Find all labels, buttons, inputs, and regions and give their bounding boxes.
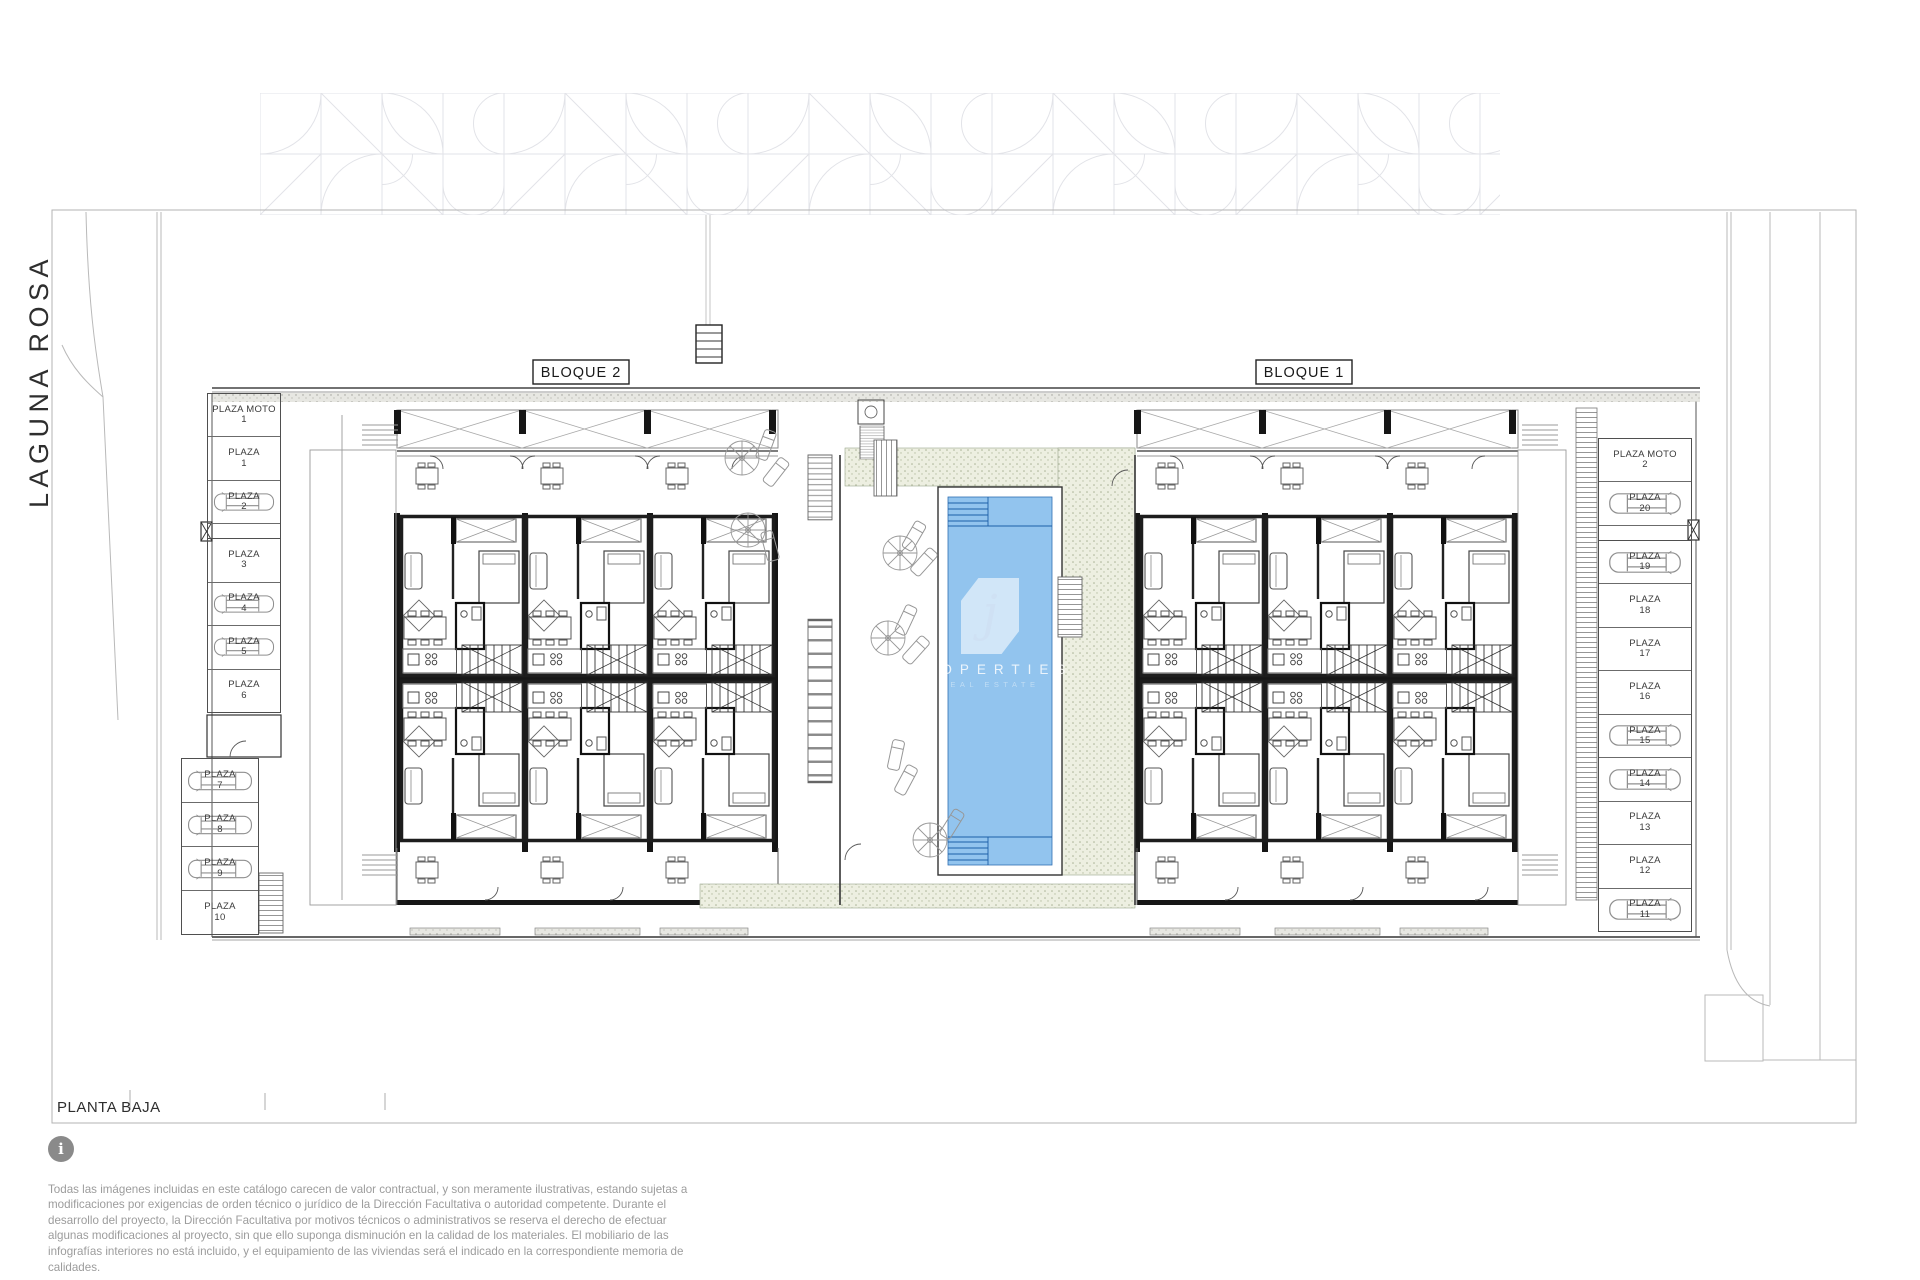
stall-label: PLAZA	[204, 770, 236, 780]
legal-disclaimer: Todas las imágenes incluidas en este cat…	[48, 1182, 708, 1276]
frame-ticks	[130, 1090, 385, 1110]
stall-label: PLAZA	[1629, 595, 1661, 605]
street-right	[1705, 212, 1856, 1061]
stall-label: PLAZA	[204, 858, 236, 868]
stall-number: 9	[217, 869, 223, 879]
stall-number: 19	[1639, 562, 1650, 572]
parking-stall: PLAZA 3	[208, 538, 280, 582]
parking-stall: PLAZA 15	[1599, 715, 1691, 758]
parking-stall: PLAZA 7	[182, 759, 258, 803]
parking-stall: PLAZA 10	[182, 891, 258, 934]
stall-number: 7	[217, 781, 223, 791]
street-left	[62, 212, 161, 940]
parking-stall: PLAZA MOTO 2	[1599, 439, 1691, 482]
floorplan-page: BLOQUE 2 BLOQUE 1 LAGUNA ROSA PLANTA BAJ…	[0, 0, 1920, 1280]
stall-number: 13	[1639, 823, 1650, 833]
stall-number: 11	[1640, 910, 1650, 920]
stall-number: 5	[241, 647, 247, 657]
info-icon: i	[48, 1136, 74, 1162]
parking-stall: PLAZA 8	[182, 803, 258, 847]
stall-number: 3	[241, 560, 247, 570]
stall-label: PLAZA	[204, 902, 236, 912]
right-walkway-ramp	[1576, 408, 1597, 900]
stall-number: 18	[1639, 606, 1650, 616]
parking-column-left-lower: PLAZA 7 PLAZA 8 PLAZA 9	[181, 758, 259, 935]
stall-number: 1	[241, 459, 247, 469]
parking-stall: PLAZA 9	[182, 847, 258, 891]
stall-number: 10	[214, 913, 225, 923]
stall-number: 20	[1639, 504, 1650, 514]
parking-stall: PLAZA 14	[1599, 758, 1691, 801]
stall-number: 1	[241, 415, 247, 425]
parking-stall: PLAZA 12	[1599, 845, 1691, 888]
floor-title: PLANTA BAJA	[57, 1099, 161, 1116]
decorative-tile-band	[260, 93, 1500, 215]
stall-label: PLAZA	[204, 814, 236, 824]
street-name-label: LAGUNA ROSA	[24, 254, 54, 508]
bloque-2-building	[394, 410, 778, 935]
stall-number: 8	[217, 825, 223, 835]
parking-stall: PLAZA 1	[208, 437, 280, 480]
parking-stall: PLAZA 5	[208, 626, 280, 669]
stall-number: 17	[1639, 649, 1650, 659]
stall-number: 6	[241, 691, 247, 701]
parking-stall: PLAZA 2	[208, 481, 280, 524]
block2-left-terrace	[310, 415, 398, 905]
parking-stall: PLAZA 19	[1599, 540, 1691, 584]
block2-label: BLOQUE 2	[533, 360, 629, 384]
entry-gate	[696, 215, 722, 363]
parking-column-right: PLAZA MOTO 2 PLAZA 20 PLAZA 19	[1598, 438, 1692, 932]
svg-text:BLOQUE 1: BLOQUE 1	[1264, 365, 1345, 381]
parking-stall: PLAZA 17	[1599, 628, 1691, 671]
parking-stall: PLAZA 13	[1599, 802, 1691, 845]
stall-number: 16	[1639, 692, 1650, 702]
block1-right-terrace	[1518, 425, 1566, 905]
swimming-pool	[938, 487, 1062, 875]
bloque-1-building	[1134, 410, 1518, 935]
stall-number: 15	[1639, 736, 1650, 746]
stall-number: 12	[1639, 866, 1650, 876]
parking-stall: PLAZA 6	[208, 670, 280, 712]
stall-number: 14	[1639, 779, 1650, 789]
parking-stall: PLAZA 16	[1599, 671, 1691, 714]
parking-stall: PLAZA 4	[208, 583, 280, 626]
parking-stall: PLAZA MOTO 1	[208, 394, 280, 437]
block1-label: BLOQUE 1	[1256, 360, 1352, 384]
parking-column-left-upper: PLAZA MOTO 1 PLAZA 1 PLAZA 2	[207, 393, 281, 713]
stall-number: 2	[241, 502, 247, 512]
parking-stall: PLAZA 20	[1599, 482, 1691, 525]
parking-stall: PLAZA 11	[1599, 889, 1691, 931]
parking-stall: PLAZA 18	[1599, 584, 1691, 627]
stall-number: 4	[241, 604, 247, 614]
svg-text:BLOQUE 2: BLOQUE 2	[541, 365, 622, 381]
stall-number: 2	[1642, 460, 1648, 470]
